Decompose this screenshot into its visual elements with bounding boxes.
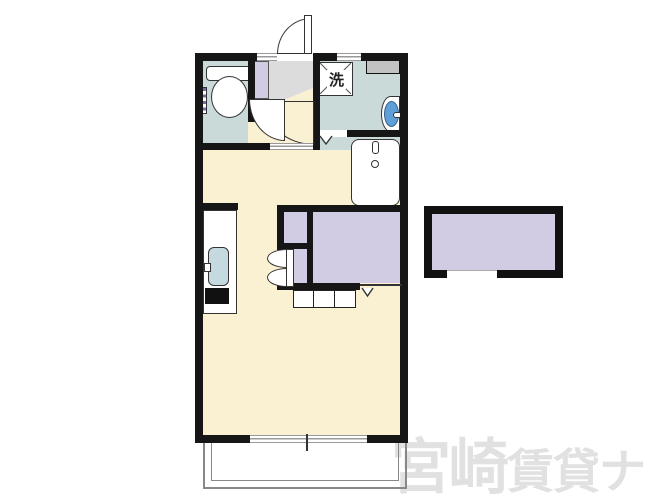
stove-icon (205, 288, 229, 304)
window-lock-mark (306, 434, 308, 451)
wall-bottom-right (367, 435, 408, 443)
wall-left (195, 53, 203, 443)
sink-handle-icon (204, 263, 211, 272)
washing-machine-pan-icon: 洗 (319, 62, 353, 96)
wall-kitchen-stub (195, 203, 238, 210)
sliding-door-hall (270, 143, 313, 150)
closet-panel-row (294, 290, 362, 308)
watermark-primary: 宮崎 (391, 438, 507, 498)
closet-folding-door-icon (361, 287, 374, 298)
wall-right (400, 53, 408, 443)
storage-box-opening (447, 270, 497, 279)
wall-closet-mid (307, 205, 313, 290)
bath-folding-door-icon (319, 135, 333, 146)
bathtub-drain-icon (371, 160, 379, 168)
wall-bath-closet (277, 205, 408, 212)
closet-panel-2 (313, 290, 335, 308)
window-top-right (337, 53, 361, 61)
wall-laundry-bath (347, 130, 408, 137)
closet-opening-line (360, 284, 402, 286)
closet-panel-1 (293, 290, 315, 308)
kitchen-sink-icon (208, 247, 229, 286)
closet-cubby-bottom (294, 249, 307, 283)
shoe-cabinet (253, 61, 269, 99)
wall-bottom-left (195, 435, 250, 443)
closet-main (313, 212, 400, 283)
floorplan-canvas: 宮崎賃貸ナビ 洗 (0, 0, 651, 504)
window-bottom (250, 435, 367, 443)
closet-panel-3 (334, 290, 356, 308)
window-top-left (257, 53, 277, 61)
closet-door-jamb (286, 249, 294, 287)
watermark: 宮崎賃貸ナビ (391, 438, 651, 498)
detached-storage-box (424, 206, 563, 278)
toilet-bowl-icon (211, 76, 248, 118)
balcony-inner-outline (211, 443, 399, 481)
laundry-label: 洗 (327, 70, 346, 89)
watermark-secondary: 賃貸ナビ (507, 449, 651, 496)
entrance-door-leaf (304, 15, 312, 54)
bathtub-faucet-icon (372, 141, 379, 154)
shelf-icon (366, 60, 400, 74)
entrance-door-opening (277, 53, 313, 61)
wall-hall-bottom-left (195, 143, 270, 150)
closet-cubby-top (284, 212, 307, 243)
